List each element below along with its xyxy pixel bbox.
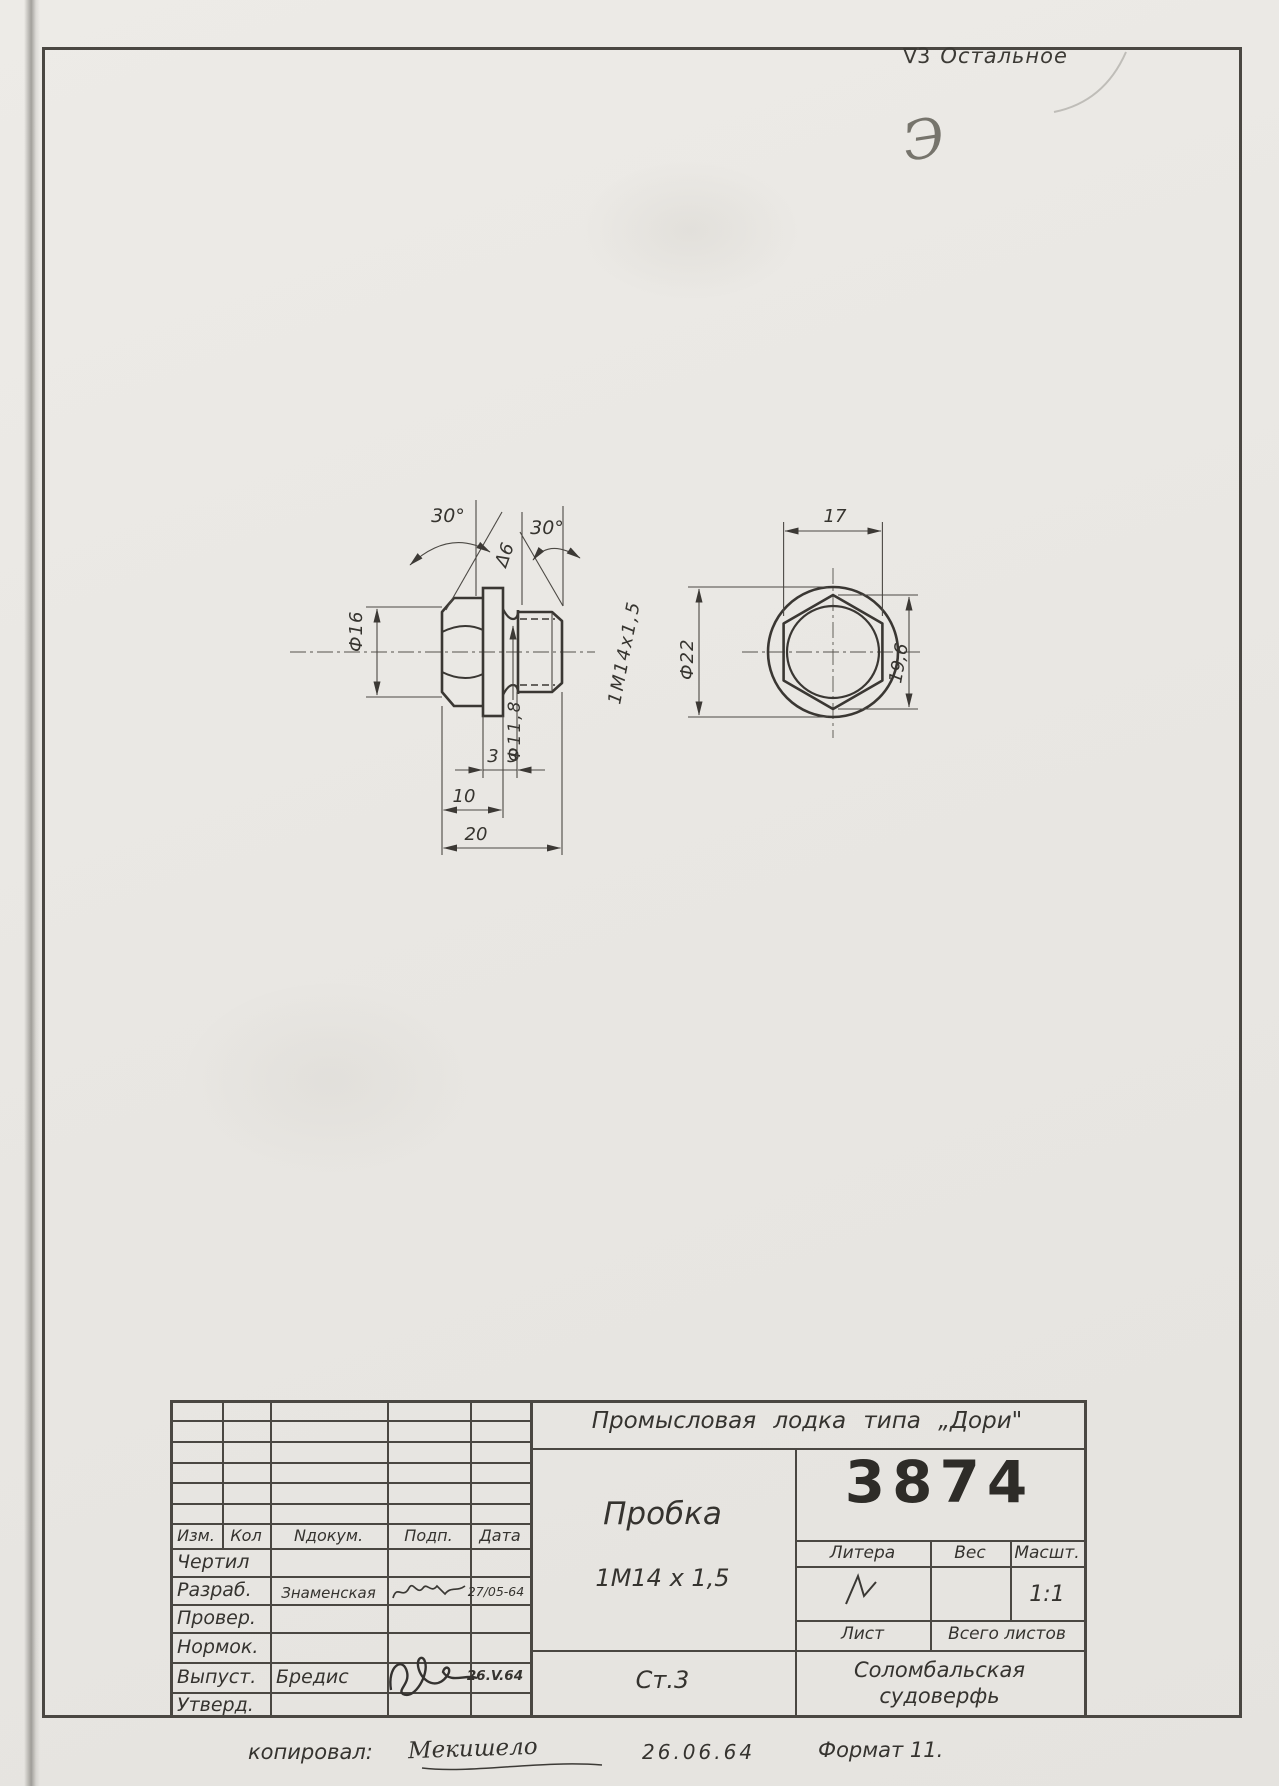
angle-arc-right bbox=[533, 548, 580, 560]
dim-label-angle-left: 30° bbox=[431, 505, 465, 527]
surface-finish-text: Остальное bbox=[940, 44, 1067, 68]
sheet-label: Лист bbox=[795, 1624, 930, 1644]
copied-date: 26.06.64 bbox=[642, 1740, 755, 1764]
dim-label-thread: 1М14х1,5 bbox=[604, 599, 645, 706]
format-note: Формат 11. bbox=[818, 1738, 943, 1762]
weight-label: Вес bbox=[930, 1543, 1010, 1563]
dim-label-collar-width: 3 bbox=[487, 746, 498, 767]
row-name-razrab: Знаменская bbox=[272, 1584, 385, 1602]
part-name: Пробка bbox=[530, 1496, 795, 1532]
copied-name-flourish bbox=[420, 1748, 605, 1778]
project-title: Промысловая лодка типа „Дори" bbox=[530, 1408, 1084, 1434]
side-view: Ф16 30° Δ6 30° Ф11,8 1М14х1,5 3 bbox=[290, 500, 645, 855]
rev-header-ndokum: Nдокум. bbox=[270, 1526, 387, 1545]
drawing-views: Ф16 30° Δ6 30° Ф11,8 1М14х1,5 3 bbox=[250, 400, 950, 880]
rev-header-podp: Подп. bbox=[387, 1526, 470, 1545]
drawing-number: 3874 bbox=[795, 1448, 1084, 1516]
row-role-normok: Нормок. bbox=[177, 1636, 258, 1658]
row-role-chertil: Чертил bbox=[177, 1551, 249, 1573]
litera-tick bbox=[846, 1576, 876, 1604]
factory-name-line2: судоверфь bbox=[795, 1684, 1084, 1708]
dim-label-across-flats: 17 bbox=[824, 506, 847, 527]
scanned-drawing-sheet: ∇3Остальное Э Ф16 bbox=[0, 0, 1279, 1786]
dim-label-collar-diameter: Ф22 bbox=[677, 639, 698, 680]
material: Ст.3 bbox=[530, 1666, 795, 1694]
chamfer-angle-line-right bbox=[520, 532, 563, 606]
scale-label: Масшт. bbox=[1010, 1543, 1084, 1563]
rev-header-kol: Кол bbox=[222, 1526, 270, 1545]
litera-mark bbox=[838, 1568, 882, 1614]
dim-label-head-diameter: Ф16 bbox=[346, 611, 367, 652]
finish-mark-label: Δ6 bbox=[490, 540, 519, 571]
dim-label-angle-right: 30° bbox=[530, 517, 564, 539]
signatures bbox=[385, 1578, 485, 1718]
dim-label-groove-width: 3 bbox=[507, 746, 518, 767]
paper-edge-shadow bbox=[24, 0, 40, 1786]
row-role-prover: Провер. bbox=[177, 1607, 256, 1629]
rev-header-izm: Изм. bbox=[170, 1526, 222, 1545]
row-role-utverd: Утверд. bbox=[177, 1694, 254, 1716]
row-name-vypust: Бредис bbox=[276, 1666, 349, 1688]
rev-header-data: Дата bbox=[470, 1526, 530, 1545]
copied-label: копировал: bbox=[248, 1740, 373, 1764]
signature-razrab bbox=[393, 1586, 465, 1598]
dim-label-overall-length: 20 bbox=[465, 824, 488, 845]
row-role-vypust: Выпуст. bbox=[177, 1666, 256, 1688]
dim-label-head-length: 10 bbox=[453, 786, 476, 807]
end-view: 17 Ф22 19,6 bbox=[677, 506, 922, 738]
scale-value: 1:1 bbox=[1010, 1582, 1084, 1607]
row-role-razrab: Разраб. bbox=[177, 1579, 252, 1601]
flourish-stroke bbox=[422, 1764, 602, 1770]
part-spec: 1М14 х 1,5 bbox=[530, 1564, 795, 1592]
surface-finish-symbol: ∇3 bbox=[903, 44, 930, 68]
signature-vypust bbox=[390, 1658, 477, 1695]
factory-name-line1: Соломбальская bbox=[795, 1658, 1084, 1682]
surface-finish-note: ∇3Остальное bbox=[903, 44, 1068, 68]
total-sheets-label: Всего листов bbox=[930, 1624, 1084, 1644]
litera-label: Литера bbox=[795, 1543, 930, 1563]
